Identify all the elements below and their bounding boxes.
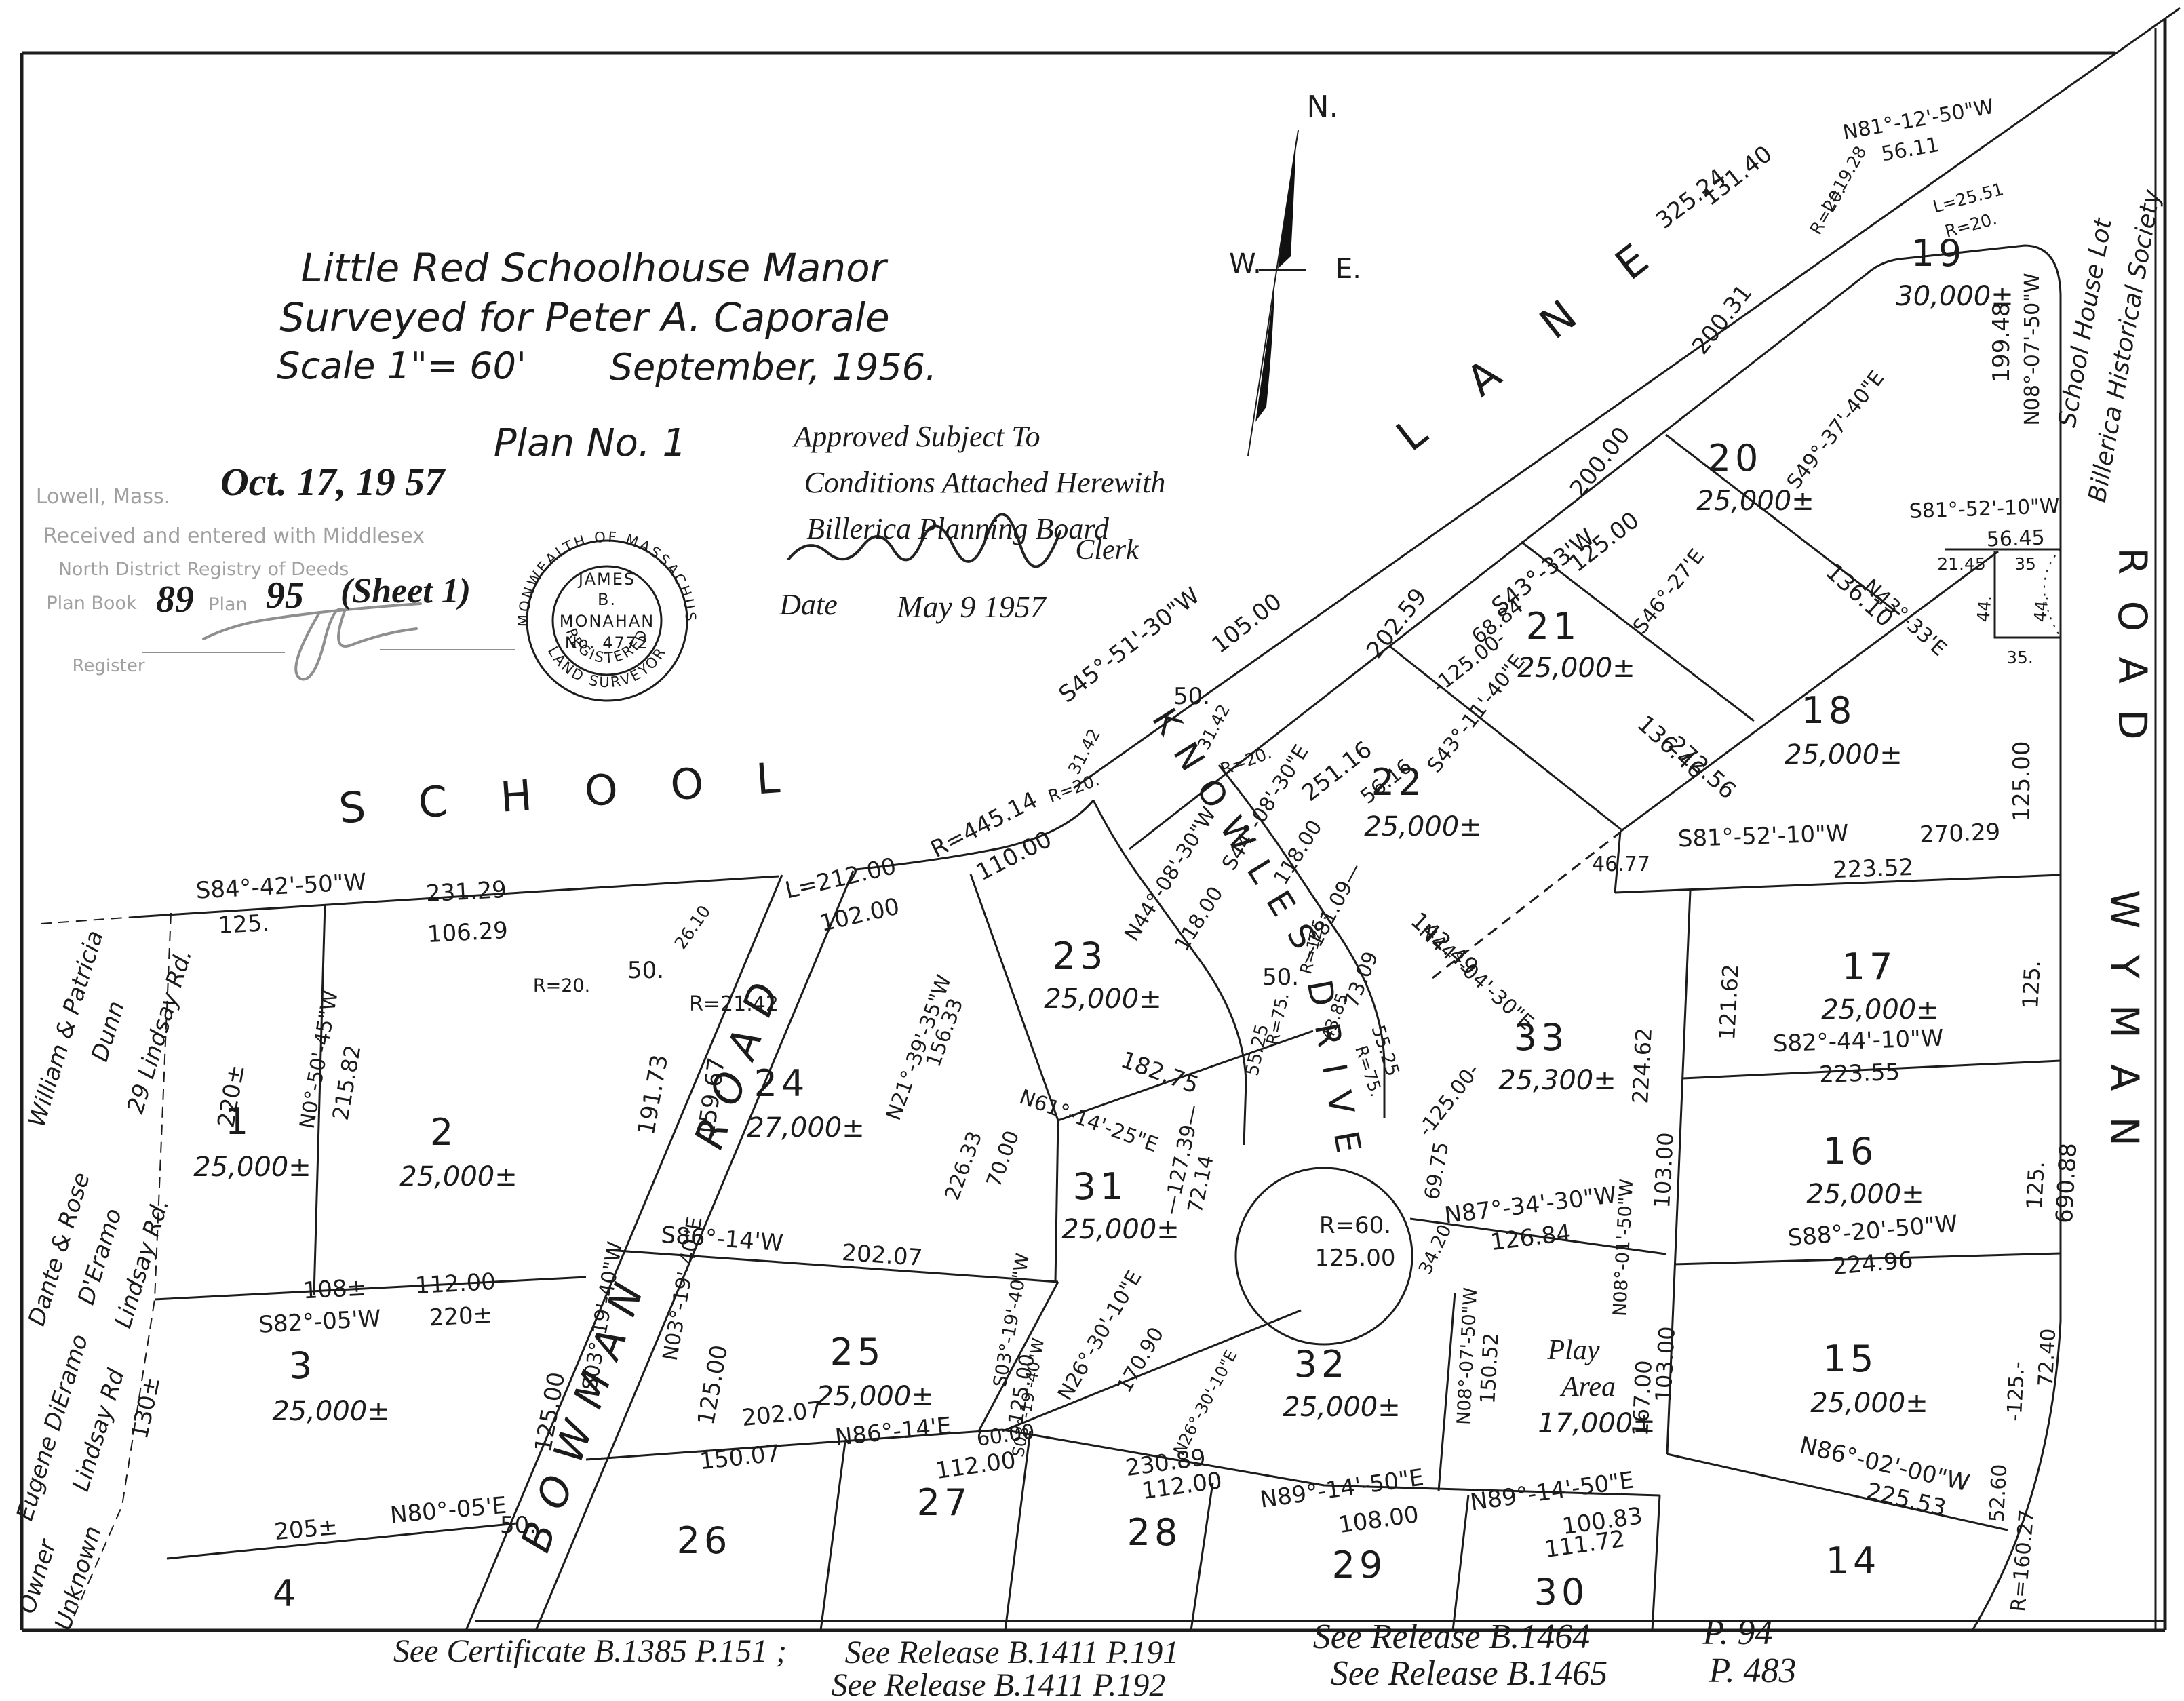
owner-label: Eugene DiEramo	[12, 1331, 94, 1524]
lot-area: 25,000±	[1044, 983, 1161, 1015]
lot-number: 32	[1294, 1343, 1349, 1386]
dim-label: 121.62	[1714, 964, 1744, 1041]
dim-label: 34.20	[1415, 1221, 1456, 1278]
lot28-29-divider	[1191, 1483, 1213, 1630]
stamp-line: 95	[266, 574, 304, 617]
lot-area: 25,000±	[272, 1396, 389, 1427]
title-line: Plan No. 1	[494, 421, 686, 465]
dim-label: 50.	[1173, 683, 1210, 710]
lot-area: 25,000±	[1517, 652, 1635, 684]
dim-label: 223.52	[1832, 854, 1913, 884]
lot-number: 20	[1708, 437, 1763, 480]
compass-label: N.	[1307, 90, 1339, 124]
dim-label: S46°-27'E	[1629, 545, 1709, 639]
lot-area: 25,000±	[1806, 1179, 1924, 1210]
dim-label: S84°-42'-50"W	[195, 868, 367, 904]
dim-label: 191.73	[633, 1053, 674, 1137]
seal-name-line3: MONAHAN	[560, 612, 655, 631]
lot32-play-divider	[1439, 1293, 1455, 1491]
lot-number: 28	[1127, 1511, 1182, 1554]
approval-line: Clerk	[1075, 534, 1139, 566]
approval-line: May 9 1957	[896, 589, 1047, 624]
lot-number: 21	[1526, 605, 1581, 648]
lot-area: 25,000±	[1364, 811, 1481, 842]
dim-label: 103.00	[1649, 1132, 1679, 1209]
knowles-west-line	[1093, 800, 1246, 1145]
dim-label: 200.31	[1687, 279, 1758, 359]
dim-label: R=20.	[533, 975, 590, 996]
annotation-layer: Little Red Schoolhouse ManorSurveyed for…	[12, 90, 2166, 1701]
stamp-line: 89	[156, 579, 194, 621]
dim-label: S82°-44'-10"W	[1772, 1025, 1944, 1058]
dim-label: 112.00	[934, 1447, 1017, 1485]
lot-number: 18	[1801, 689, 1856, 732]
dim-label: 202.07	[741, 1396, 823, 1432]
lot26-27-divider	[821, 1442, 845, 1630]
lot-area: 25,000±	[1061, 1214, 1179, 1245]
dim-label: 224.62	[1627, 1028, 1657, 1105]
compass-label: W.	[1229, 248, 1262, 279]
dim-label: 125.	[218, 910, 271, 939]
lot-number: 3	[289, 1344, 316, 1387]
note-line: See Release B.1411 P.192	[832, 1667, 1166, 1701]
dim-label: 35.	[2006, 648, 2033, 667]
dim-label: 108±	[303, 1274, 367, 1305]
dim-label: 270.29	[1919, 819, 2000, 848]
title-line: Little Red Schoolhouse Manor	[301, 245, 889, 291]
stamp-line: Plan Book	[46, 593, 137, 614]
school-street-extension	[41, 917, 134, 924]
lot-number: 27	[917, 1481, 972, 1524]
seal-number: No. 4772	[565, 633, 650, 652]
stamp-line: Oct. 17, 19 57	[220, 460, 446, 504]
title-line: Surveyed for Peter A. Caporale	[279, 294, 889, 340]
dim-label: 125.00	[693, 1343, 733, 1427]
dim-label: R=20.	[1806, 182, 1850, 238]
dim-label: 108.00	[1337, 1501, 1420, 1539]
owner-label: Unknown	[50, 1523, 106, 1633]
dim-label: 226.33	[941, 1128, 988, 1203]
owner-label: 29 Lindsay Rd.	[122, 946, 198, 1117]
lot-number: 26	[677, 1519, 732, 1562]
dim-label: S49°-37'-40"E	[1782, 366, 1890, 494]
north-arrow-blade-lower	[1255, 288, 1274, 422]
stamp-line: Plan	[208, 594, 247, 615]
road-name: LANE	[1387, 195, 1709, 461]
lot-area: 27,000±	[747, 1112, 864, 1143]
plat-map: COMMONWEALTH OF MASSACHUSETTS LAND SURVE…	[0, 0, 2184, 1701]
dim-label: S81°-52'-10"W	[1677, 820, 1849, 853]
lot-area: 25,000±	[193, 1152, 311, 1183]
lot-number: 31	[1073, 1165, 1128, 1208]
stamp-line: Received and entered with Middlesex	[43, 524, 425, 548]
dim-label: 223.55	[1818, 1059, 1900, 1089]
dim-label: 56.11	[1879, 133, 1941, 166]
dim-label: 52.60	[1985, 1464, 2012, 1523]
lot-number: 22	[1371, 761, 1426, 804]
dim-label: 106.29	[427, 917, 509, 948]
dim-label: 130±	[126, 1374, 166, 1442]
compass-label: E.	[1335, 254, 1361, 285]
lot29-30-divider	[1453, 1495, 1468, 1630]
schoolhouse-lot-leader	[2044, 549, 2061, 638]
seal-name-line2: B.	[598, 590, 617, 609]
dim-label: S88°-20'-50"W	[1787, 1210, 1959, 1252]
dim-label: S82°-05'W	[258, 1305, 381, 1338]
dim-label: 72.40	[2034, 1328, 2061, 1388]
signature-lines	[142, 650, 515, 652]
dim-label: 105.00	[1207, 588, 1287, 659]
lot-area: 25,000±	[1810, 1388, 1928, 1419]
dim-label: 220±	[429, 1302, 493, 1332]
dim-label: 50.	[627, 957, 664, 984]
approval-line: Billerica Planning Board	[806, 512, 1110, 545]
stamp-line: North District Registry of Deeds	[58, 559, 349, 580]
lot-area: 25,300±	[1498, 1065, 1616, 1096]
lot23-24-divider	[971, 874, 1058, 1282]
dim-label: 205±	[273, 1513, 339, 1546]
dim-label: N87°-34'-30"W	[1443, 1181, 1618, 1230]
lot-area: 25,000±	[1821, 994, 1938, 1025]
dim-label: R=60.	[1319, 1212, 1391, 1239]
lot-area: 25,000±	[1283, 1392, 1400, 1423]
road-name: ROAD	[2109, 547, 2156, 765]
lot-area: 25,000±	[816, 1381, 933, 1412]
note-line: See Certificate B.1385 P.151 ;	[393, 1633, 787, 1669]
title-line: September, 1956.	[610, 346, 937, 389]
dim-label: N86°-14'E	[834, 1412, 952, 1451]
approval-line: Date	[779, 588, 838, 621]
dim-label: 70.00	[982, 1127, 1024, 1190]
lot-number: 29	[1332, 1544, 1387, 1586]
road-name: WYMAN	[2101, 890, 2147, 1172]
dim-label: 118.00	[1269, 816, 1327, 889]
dim-label: 112.00	[414, 1268, 496, 1299]
lot-area: 25,000±	[1785, 739, 1902, 770]
dim-label: 231.29	[425, 876, 507, 907]
dim-label: 44.	[1973, 594, 1995, 623]
note-line: P. 483	[1708, 1651, 1796, 1690]
dim-label: 111.72	[1543, 1525, 1626, 1563]
dim-label: R=160.27	[2007, 1508, 2040, 1612]
dim-label: 167.00	[1627, 1360, 1657, 1437]
lot-number: 24	[754, 1062, 809, 1105]
road-name: SCHOOL	[337, 749, 834, 834]
dim-label: N08°-07'-50"W	[1454, 1287, 1482, 1425]
dim-label: 125.00	[2008, 741, 2035, 822]
lot-number: 4	[273, 1572, 300, 1615]
lot-number: 2	[430, 1111, 457, 1154]
dim-label: 224.96	[1831, 1247, 1914, 1280]
owner-label: Dante & Rose	[23, 1169, 96, 1329]
play-area-label: Play	[1547, 1335, 1600, 1366]
dim-label: 182.75	[1117, 1047, 1202, 1099]
dim-label: 46.77	[1592, 853, 1650, 876]
lot-number: 1	[225, 1100, 252, 1143]
lot-number: 19	[1911, 232, 1966, 275]
dim-label: 26.10	[671, 901, 715, 952]
stamp-line: (Sheet 1)	[340, 572, 471, 610]
dim-label: 125.00	[1315, 1245, 1396, 1272]
seal-name-line1: JAMES	[577, 570, 636, 589]
lot-number: 14	[1826, 1540, 1881, 1582]
lot-number: 15	[1823, 1337, 1878, 1380]
note-line: See Release B.1464	[1313, 1618, 1591, 1656]
lot3-4-divider	[167, 1523, 517, 1559]
lot-area: 25,000±	[1696, 486, 1814, 517]
lot-area: 25,000±	[399, 1161, 517, 1192]
dim-label: 126.84	[1489, 1219, 1572, 1256]
stamp-line: Register	[72, 656, 144, 676]
dim-label: N61°-14'-25"E	[1016, 1085, 1161, 1157]
play-area-label: Area	[1559, 1371, 1616, 1403]
dim-label: 170.90	[1112, 1323, 1169, 1396]
dim-label: 690.88	[2051, 1142, 2082, 1224]
survey-plan-sheet: COMMONWEALTH OF MASSACHUSETTS LAND SURVE…	[0, 0, 2184, 1701]
dim-label: 44.	[2030, 594, 2052, 623]
dim-label: 215.82	[328, 1043, 366, 1122]
dim-label: 125.	[2021, 1160, 2050, 1210]
lot-number: 25	[830, 1331, 885, 1373]
stamp-line: Lowell, Mass.	[36, 485, 170, 509]
dim-label: R=21.42	[689, 992, 779, 1016]
dim-label: -125.00-	[1413, 1059, 1485, 1141]
dim-label: 69.75	[1420, 1140, 1454, 1202]
approval-line: Conditions Attached Herewith	[804, 466, 1166, 499]
dim-label: R=75.	[1262, 991, 1293, 1047]
dim-label: 202.07	[841, 1239, 923, 1272]
dim-label: S81°-52'-10"W	[1909, 494, 2060, 524]
dim-label: R=20.	[1217, 743, 1274, 779]
dim-label: N26°-30'-10"E	[1169, 1347, 1241, 1459]
dim-label: 150.52	[1476, 1332, 1503, 1405]
owner-label: Dunn	[86, 998, 130, 1065]
s82-05-line	[155, 1277, 586, 1299]
lot-number: 23	[1053, 935, 1108, 977]
approval-line: Approved Subject To	[792, 420, 1040, 453]
dim-label: 150.07	[699, 1440, 781, 1475]
dim-label: N08°-07'-50"W	[2021, 273, 2044, 425]
lot-number: 17	[1842, 945, 1897, 988]
dim-label: 125.	[2017, 960, 2046, 1009]
lot-number: 30	[1534, 1571, 1589, 1614]
lot-number: 16	[1823, 1130, 1878, 1173]
dim-label: -125.-	[2003, 1361, 2030, 1422]
note-line: P. 94	[1702, 1614, 1772, 1652]
note-line: See Release B.1465	[1331, 1654, 1608, 1693]
dim-label: 21.45	[1937, 554, 1986, 574]
lot-area: 30,000±	[1896, 281, 2013, 312]
dim-label: 56.45	[1986, 526, 2045, 552]
lot30-14-divider	[1652, 1495, 1660, 1630]
dim-label: 50.	[1262, 964, 1299, 991]
dim-label: 118.00	[1170, 882, 1228, 956]
dim-label: 35	[2014, 554, 2036, 574]
dim-label: 102.00	[817, 893, 902, 937]
dim-label: N80°-05'E	[389, 1492, 508, 1529]
note-line: See Release B.1411 P.191	[845, 1635, 1179, 1670]
title-line: Scale 1"= 60'	[277, 345, 526, 387]
dim-label: 199.48	[1988, 302, 2015, 383]
lot-number: 33	[1514, 1016, 1569, 1059]
